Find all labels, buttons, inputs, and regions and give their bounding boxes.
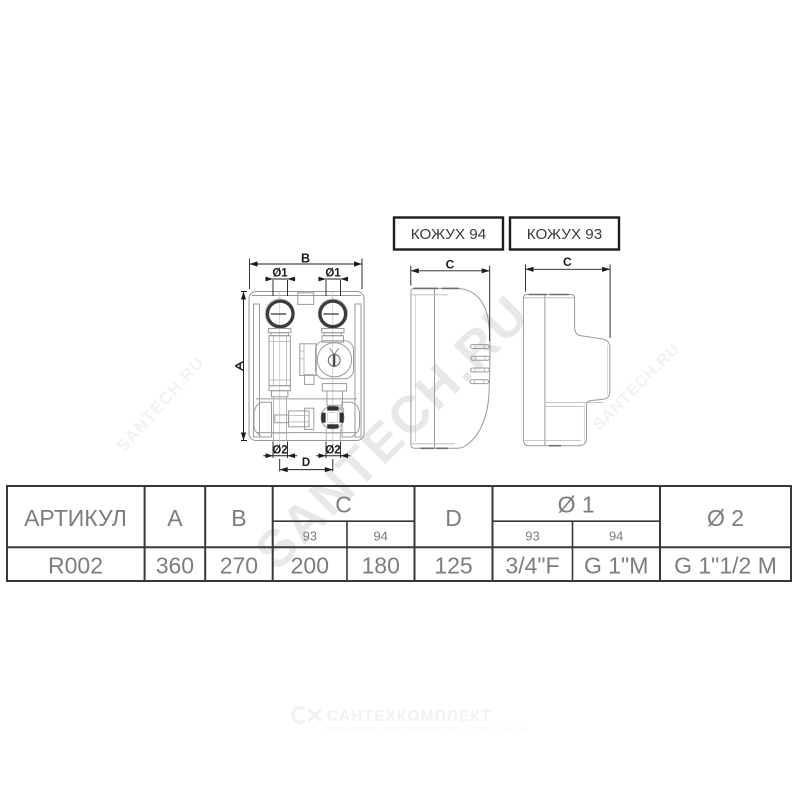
svg-text:C: C — [563, 255, 572, 269]
svg-text:Ø 1: Ø 1 — [558, 492, 595, 518]
svg-text:Ø 2: Ø 2 — [707, 505, 744, 531]
svg-text:ИНЖЕНЕРНОЕ ОБОРУДОВАНИЕ ДЛЯ СТ: ИНЖЕНЕРНОЕ ОБОРУДОВАНИЕ ДЛЯ СТРОИТЕЛЬСТВ… — [327, 726, 528, 733]
svg-text:Ø2: Ø2 — [325, 445, 340, 457]
svg-text:93: 93 — [525, 529, 539, 544]
svg-text:B: B — [231, 505, 246, 531]
svg-text:C: C — [335, 492, 352, 518]
svg-text:КОЖУХ 93: КОЖУХ 93 — [527, 226, 602, 243]
svg-text:180: 180 — [362, 553, 400, 579]
svg-text:125: 125 — [434, 553, 472, 579]
svg-text:САНТЕХКОМПЛЕКТ: САНТЕХКОМПЛЕКТ — [327, 708, 492, 725]
svg-text:АРТИКУЛ: АРТИКУЛ — [24, 505, 127, 531]
svg-text:D: D — [445, 505, 462, 531]
svg-text:200: 200 — [291, 553, 329, 579]
svg-text:Ø1: Ø1 — [272, 268, 288, 280]
svg-text:270: 270 — [220, 553, 258, 579]
svg-text:G 1"1/2 M: G 1"1/2 M — [674, 553, 777, 579]
svg-text:94: 94 — [373, 529, 387, 544]
svg-text:КОЖУХ 94: КОЖУХ 94 — [411, 226, 486, 243]
svg-text:Ø2: Ø2 — [272, 445, 287, 457]
svg-text:C: C — [446, 258, 455, 272]
svg-text:B: B — [301, 252, 310, 266]
svg-text:3/4"F: 3/4"F — [505, 553, 559, 579]
svg-text:D: D — [302, 457, 310, 469]
svg-text:A: A — [167, 505, 183, 531]
svg-text:R002: R002 — [48, 553, 103, 579]
svg-text:360: 360 — [156, 553, 194, 579]
svg-text:93: 93 — [303, 529, 317, 544]
svg-text:G 1"M: G 1"M — [584, 553, 648, 579]
svg-text:Ø1: Ø1 — [325, 268, 341, 280]
svg-text:94: 94 — [609, 529, 623, 544]
